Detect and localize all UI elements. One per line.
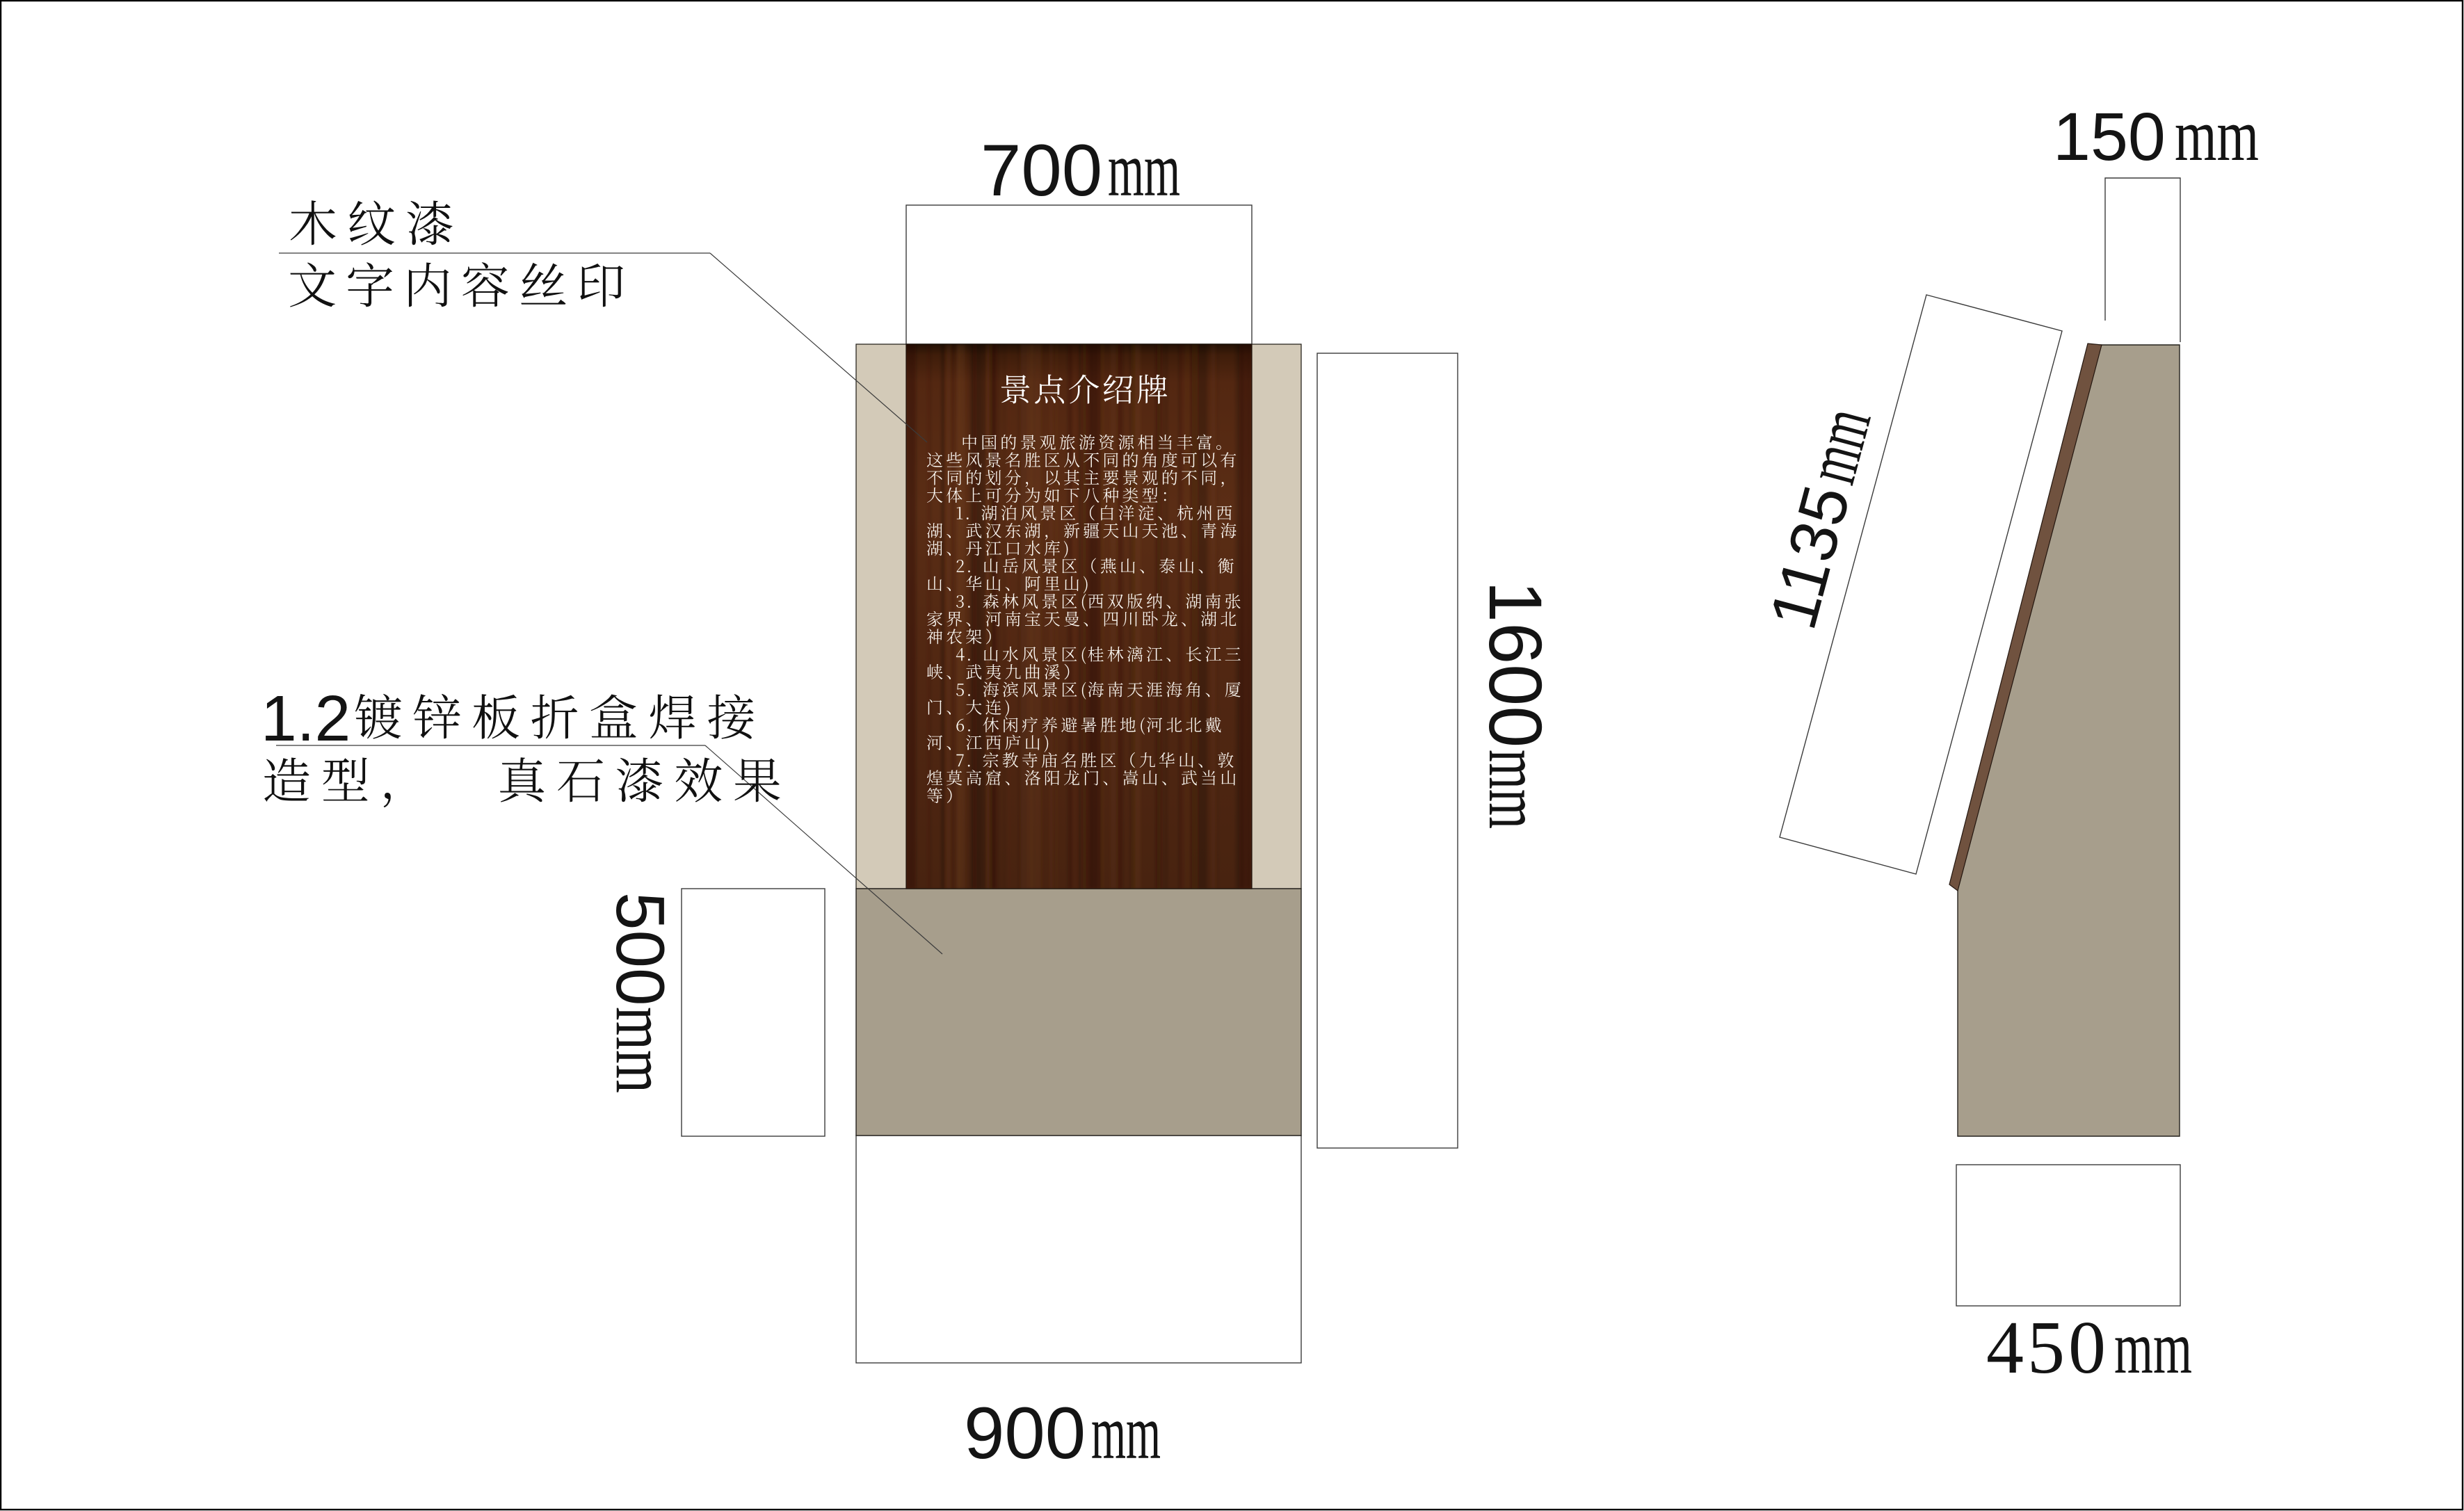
svg-text:mm: mm	[1108, 127, 1180, 213]
svg-text:1600: 1600	[1474, 581, 1558, 748]
svg-text:mm: mm	[1473, 750, 1556, 829]
svg-text:mm: mm	[2175, 95, 2259, 177]
svg-text:150: 150	[2053, 99, 2166, 175]
svg-text:mm: mm	[2114, 1307, 2192, 1389]
svg-text:900: 900	[964, 1393, 1086, 1474]
svg-text:mm: mm	[1091, 1390, 1161, 1476]
svg-text:450: 450	[1986, 1307, 2109, 1389]
svg-text:700: 700	[981, 130, 1102, 211]
svg-text:mm: mm	[601, 1007, 682, 1093]
svg-text:500: 500	[602, 892, 679, 1006]
svg-text:1.2: 1.2	[261, 682, 351, 754]
